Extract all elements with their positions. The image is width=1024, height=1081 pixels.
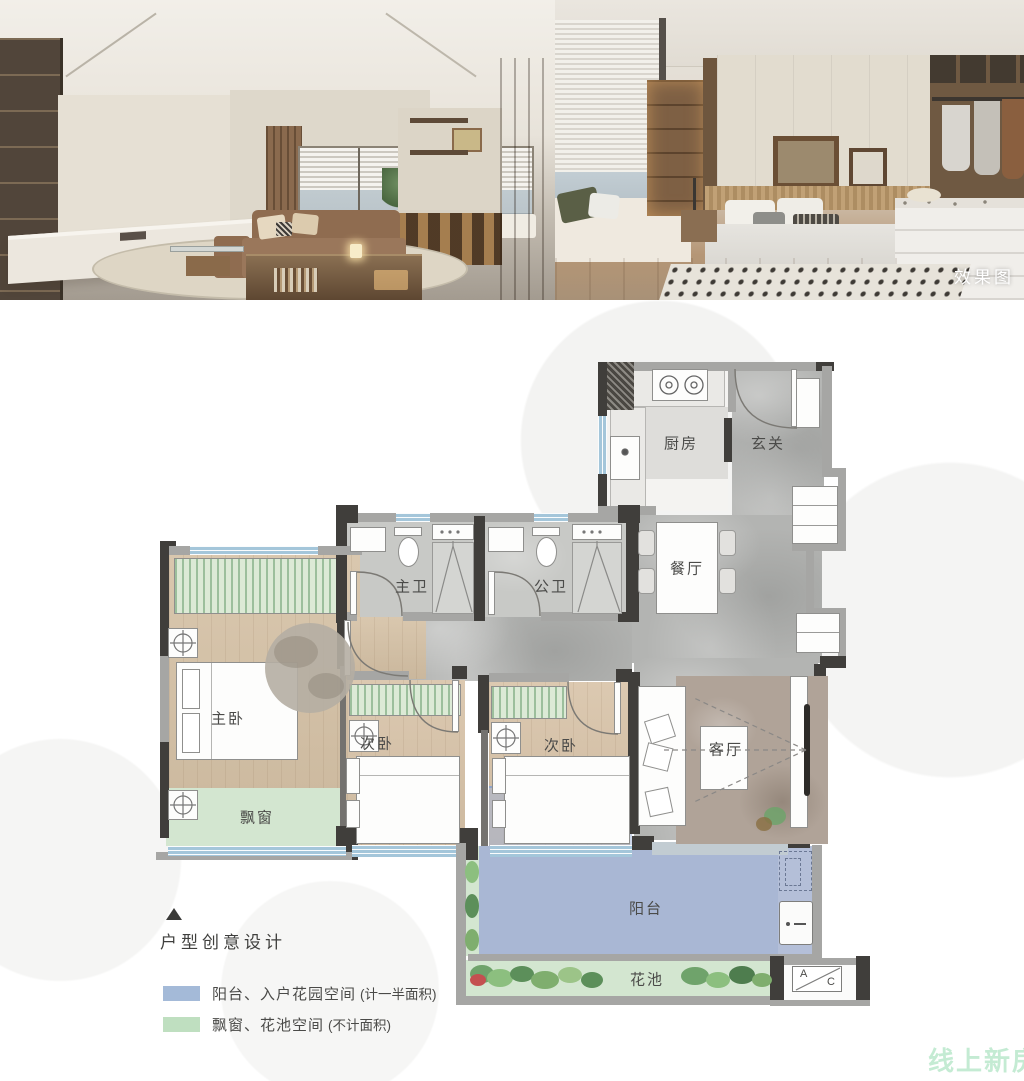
sofa-cushion — [276, 222, 292, 236]
legend-title: 户型创意设计 — [160, 928, 286, 953]
toilet — [398, 537, 419, 567]
legend-item: 飘窗、花池空间 (不计面积) — [163, 1016, 391, 1032]
door-leaf — [350, 571, 357, 615]
nightstand — [491, 722, 521, 754]
label-balcony: 阳台 — [629, 898, 663, 919]
art-frame — [452, 128, 482, 152]
nightstand — [681, 210, 717, 242]
storage-boxes — [930, 55, 1024, 83]
legend-item: 阳台、入户花园空间 (计一半面积) — [163, 985, 437, 1001]
hanging-coat — [1002, 99, 1024, 179]
right-wall-panel — [398, 108, 502, 212]
bedside-lamp — [693, 178, 696, 210]
bath-sink — [488, 527, 524, 552]
legend-swatch-balcony — [163, 986, 200, 1001]
entry-door-leaf — [791, 369, 797, 427]
lit-niche — [374, 270, 408, 290]
sofa — [638, 686, 686, 826]
triangle-marker — [166, 908, 182, 920]
label-bedroom-3: 次卧 — [544, 735, 578, 756]
stove — [652, 369, 708, 401]
floating-shelf — [410, 118, 468, 123]
kitchen-sink — [610, 436, 640, 480]
bronze-console — [246, 254, 422, 300]
label-bay-window: 飘窗 — [240, 807, 274, 828]
label-flower-bed: 花池 — [630, 969, 664, 990]
hanging-shirt — [942, 105, 970, 171]
hanging-shirt — [974, 101, 1000, 175]
shower — [572, 542, 622, 614]
tv — [804, 704, 810, 796]
ac-label-c: C — [827, 976, 835, 988]
watermark: 线上新房 — [928, 1041, 1024, 1078]
nightstand — [168, 628, 198, 658]
legend-label: 阳台、入户花园空间 — [212, 983, 356, 1004]
sofa-cushion — [291, 213, 319, 236]
ac-platform-box: A C — [792, 966, 842, 992]
floating-shelf — [410, 150, 468, 155]
shower — [432, 542, 474, 614]
toilet — [536, 537, 557, 567]
bed-2 — [356, 756, 460, 844]
pillow — [588, 192, 620, 219]
ac-label-a: A — [800, 968, 807, 980]
nightstand — [168, 790, 198, 820]
door-leaf — [344, 620, 351, 676]
label-foyer: 玄关 — [751, 433, 785, 454]
label-master-bath: 主卫 — [395, 576, 429, 597]
label-dining: 餐厅 — [670, 558, 704, 579]
books — [274, 268, 318, 292]
niche-shelves — [647, 80, 705, 216]
wood-column — [500, 58, 555, 300]
toilet-tank — [394, 527, 422, 536]
closet — [930, 55, 1024, 207]
straw-hat — [907, 188, 941, 202]
picture-frame — [773, 136, 839, 188]
label-public-bath: 公卫 — [534, 576, 568, 597]
door-leaf — [452, 680, 459, 732]
living-room-photo — [0, 0, 555, 300]
water-heater — [779, 901, 813, 945]
vanity — [432, 524, 474, 540]
table-lamp — [350, 244, 362, 258]
door-leaf — [614, 682, 621, 734]
legend-note: (计一半面积) — [360, 983, 437, 1003]
legend-note: (不计面积) — [328, 1014, 391, 1034]
label-bedroom-2: 次卧 — [360, 733, 394, 754]
bedroom-photo: 效果图 — [555, 0, 1024, 300]
door-leaf — [488, 571, 495, 615]
label-kitchen: 厨房 — [664, 433, 698, 454]
label-master-bedroom: 主卧 — [211, 708, 245, 729]
legend-label: 飘窗、花池空间 — [212, 1014, 324, 1035]
listing-image: 效果图 — [0, 0, 1024, 1081]
bed-3 — [504, 756, 630, 844]
picture-frame — [849, 148, 887, 188]
render-tag: 效果图 — [954, 263, 1014, 288]
vanity — [572, 524, 622, 540]
toilet-tank — [532, 527, 560, 536]
legend-swatch-baywindow — [163, 1017, 200, 1032]
washing-machine — [779, 851, 812, 891]
render-photos: 效果图 — [0, 0, 1024, 300]
coffee-table-base — [186, 256, 230, 276]
coffee-table-top — [170, 246, 244, 252]
checkered-rug — [659, 264, 971, 300]
bath-sink — [350, 527, 386, 552]
label-living-room: 客厅 — [709, 739, 743, 760]
